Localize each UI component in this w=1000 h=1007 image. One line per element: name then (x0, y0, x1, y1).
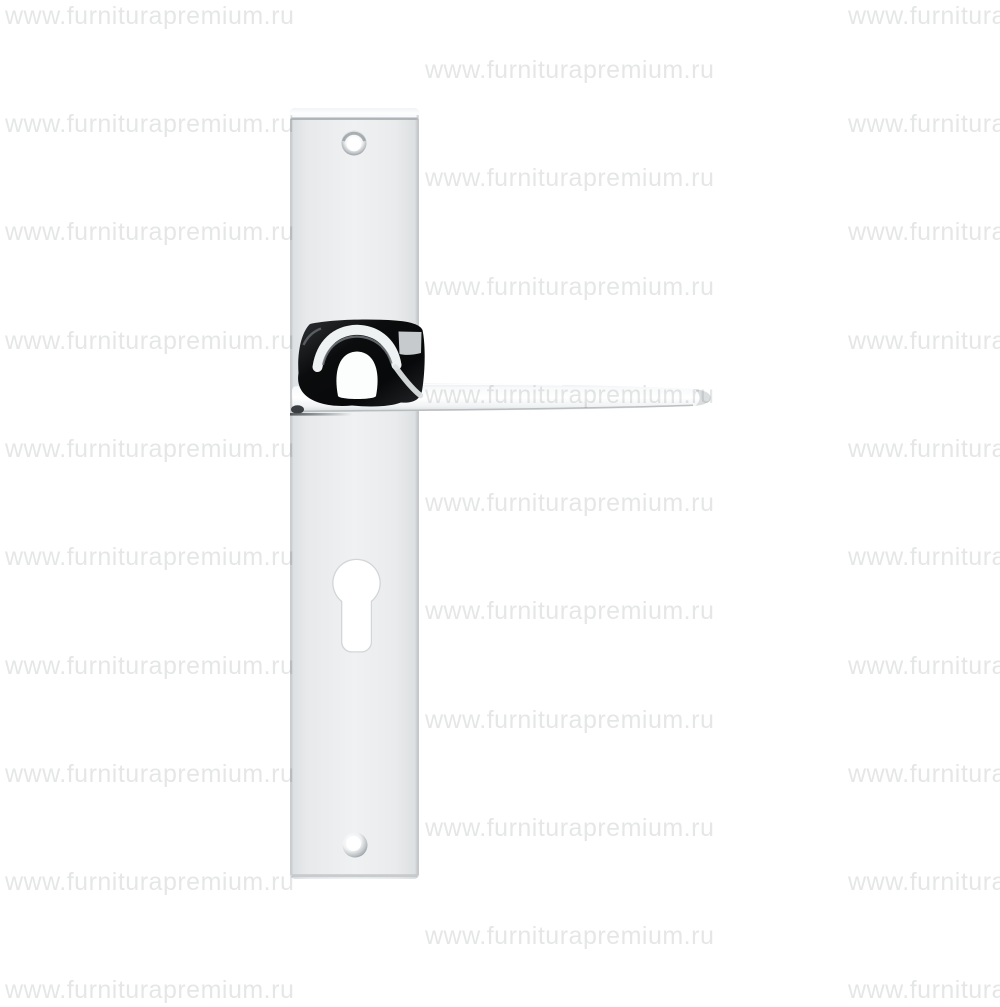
neck-bell-highlight (336, 352, 377, 400)
bottom-screw-hole (343, 833, 368, 858)
door-handle-image (0, 0, 1000, 1000)
backplate (290, 108, 419, 879)
neck-notch-highlight (399, 332, 422, 355)
product-photo-canvas: www.furniturapremium.ruwww.furnituraprem… (0, 0, 1000, 1000)
handle-neck-reflection (298, 320, 425, 407)
top-screw-hole (342, 131, 367, 156)
lever-heel-shadow (291, 405, 304, 413)
